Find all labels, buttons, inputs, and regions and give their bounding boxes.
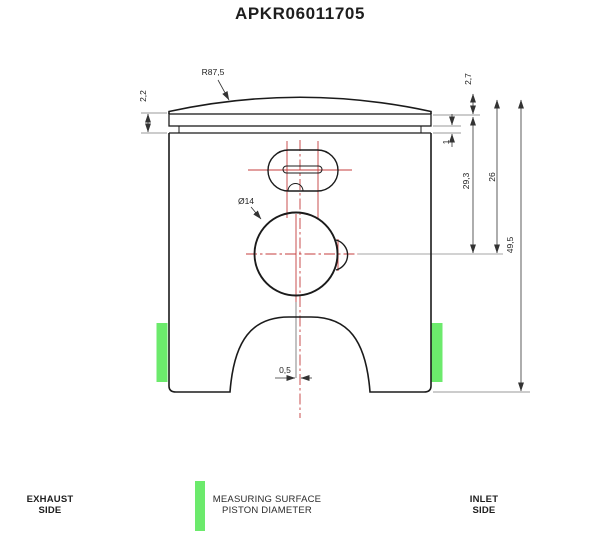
dim-label-pin-bore: Ø14 [238, 196, 254, 206]
window-slot [283, 166, 322, 173]
legend-inlet-side: INLET SIDE [444, 495, 524, 516]
measuring-surface-swatch [195, 481, 205, 531]
leader-pin-bore [251, 207, 261, 219]
piston-crown-dome [169, 97, 431, 114]
top-ring-land [169, 114, 431, 126]
technical-drawing-page: APKR06011705 [0, 0, 600, 533]
dim-label-top-land: 2,2 [138, 90, 148, 102]
measuring-surface-band-left [157, 323, 168, 382]
measuring-surface-band-right [432, 323, 443, 382]
window-bottom-notch [288, 184, 303, 192]
legend-exhaust-side: EXHAUST SIDE [8, 495, 92, 516]
dim-label-crown-to-pin: 29,3 [461, 172, 471, 189]
legend-measuring-surface: MEASURING SURFACE PISTON DIAMETER [208, 495, 326, 516]
dimension-lines [148, 80, 521, 391]
legend-measuring-line1: MEASURING SURFACE [208, 495, 326, 506]
dim-label-total-height: 49,5 [505, 236, 515, 253]
leader-crown-radius [218, 80, 229, 100]
legend-exhaust-line2: SIDE [8, 506, 92, 517]
dim-label-ring-groove: 1 [441, 139, 451, 144]
legend-inlet-line1: INLET [444, 495, 524, 506]
legend-inlet-line2: SIDE [444, 506, 524, 517]
piston-drawing: 2,2 R87,5 2,7 1 29,3 26 49,5 Ø14 0,5 [0, 0, 600, 533]
dim-label-land-to-pin: 26 [487, 172, 497, 182]
legend-exhaust-line1: EXHAUST [8, 495, 92, 506]
dim-label-dome-height: 2,7 [463, 73, 473, 85]
extension-lines [141, 113, 530, 392]
dim-label-crown-radius: R87,5 [202, 67, 225, 77]
legend-measuring-line2: PISTON DIAMETER [208, 506, 326, 517]
dim-label-center-offset: 0,5 [279, 365, 291, 375]
window-oval [268, 150, 338, 191]
